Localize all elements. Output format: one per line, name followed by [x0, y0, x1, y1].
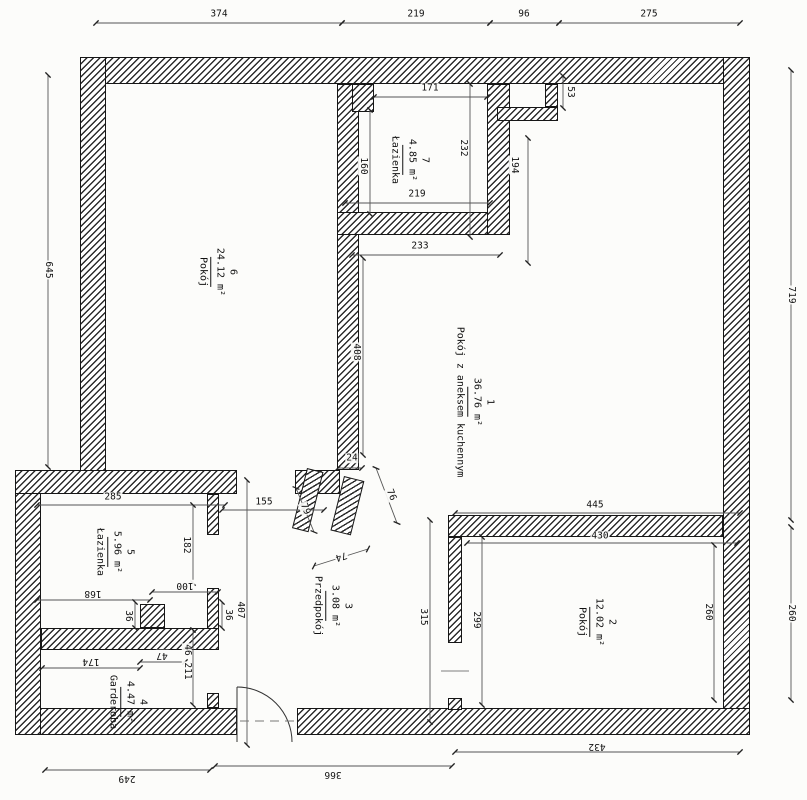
- room-label-divider: [589, 607, 590, 637]
- room-label-6: 624.12 m²Pokój: [196, 248, 239, 296]
- wall-hall-right-a: [448, 537, 462, 643]
- dim-label-233: 233: [410, 241, 429, 251]
- room-name: Przedpokój: [311, 576, 324, 636]
- dim-label-407: 407: [235, 600, 245, 619]
- room-label-2: 212.02 m²Pokój: [575, 598, 618, 646]
- dim-label-232: 232: [458, 138, 468, 157]
- wall-bath7-bottom: [337, 212, 510, 235]
- dim-label-36: 36: [123, 609, 133, 622]
- room-area: 12.02 m²: [592, 598, 605, 646]
- room-label-4: 44.47 m²Garderoba: [106, 675, 149, 729]
- room-number: 2: [605, 619, 618, 625]
- dim-label-155: 155: [254, 497, 273, 507]
- dim-label-46: 46: [182, 643, 192, 656]
- dim-label-160: 160: [358, 156, 368, 175]
- room-label-3: 33.08 m²Przedpokój: [311, 576, 354, 636]
- wall-exterior-bottom-right: [297, 708, 750, 735]
- room-area: 24.12 m²: [213, 248, 226, 296]
- wall-hall-right-b: [448, 698, 462, 710]
- room-name: Pokój: [575, 607, 588, 637]
- room-area: 5.96 m²: [110, 531, 123, 573]
- wall-exterior-top: [80, 57, 750, 84]
- wall-hall-left-a: [207, 494, 219, 535]
- room-name: Garderoba: [106, 675, 119, 729]
- dim-label-374: 374: [209, 9, 228, 19]
- room-number: 7: [418, 157, 431, 163]
- dim-label-249: 249: [117, 773, 136, 783]
- room-label-divider: [467, 387, 468, 417]
- dim-label-36: 36: [223, 608, 233, 621]
- dim-label-174: 174: [81, 656, 100, 666]
- room-name: Łazienka: [93, 528, 106, 576]
- room-label-divider: [325, 591, 326, 621]
- dim-label-182: 182: [181, 535, 191, 554]
- dim-label-299: 299: [471, 610, 481, 629]
- wall-room6-room1-divider: [337, 84, 359, 470]
- wall-exterior-left-upper: [80, 57, 106, 494]
- dim-label-285: 285: [103, 492, 122, 502]
- room-label-7: 74.85 m²Łazienka: [388, 136, 431, 184]
- room-area: 4.47 m²: [123, 681, 136, 723]
- dim-label-645: 645: [43, 260, 53, 279]
- room-label-5: 55.96 m²Łazienka: [93, 528, 136, 576]
- wall-hall-left-c: [207, 693, 219, 708]
- room-label-divider: [210, 257, 211, 287]
- wall-bath7-step-stub: [352, 84, 374, 112]
- wall-niche-right-stub: [545, 84, 558, 107]
- dim-label-47: 47: [155, 650, 168, 660]
- entrance-door: [237, 687, 294, 742]
- dim-label-74: 74: [333, 549, 349, 562]
- room-label-divider: [402, 145, 403, 175]
- dim-label-219: 219: [406, 9, 425, 19]
- dim-label-76: 76: [384, 487, 398, 503]
- room-area: 36.76 m²: [470, 378, 483, 426]
- wall-room2-top: [448, 515, 723, 537]
- dim-label-408: 408: [351, 342, 361, 361]
- room-number: 3: [341, 603, 354, 609]
- room-number: 4: [136, 699, 149, 705]
- dim-label-171: 171: [420, 83, 439, 93]
- dim-label-366: 366: [323, 769, 342, 779]
- dim-label-24: 24: [345, 453, 358, 463]
- floor-plan: 3742199627564571926024936643228518216810…: [0, 0, 807, 800]
- dim-label-100: 100: [175, 580, 194, 590]
- room-number: 1: [483, 399, 496, 405]
- dim-label-219: 219: [407, 189, 426, 199]
- dim-label-194: 194: [509, 155, 519, 174]
- dim-label-430: 430: [590, 531, 609, 541]
- room-number: 6: [226, 269, 239, 275]
- dim-label-432: 432: [587, 741, 606, 751]
- room-name: Pokój z aneksem kuchennym: [453, 327, 466, 478]
- dim-label-445: 445: [585, 500, 604, 510]
- room-label-1: 136.76 m²Pokój z aneksem kuchennym: [453, 327, 496, 478]
- room-name: Łazienka: [388, 136, 401, 184]
- room-label-divider: [107, 537, 108, 567]
- dim-label-96: 96: [517, 9, 530, 19]
- dim-label-53: 53: [565, 85, 575, 98]
- wall-exterior-right: [723, 57, 750, 735]
- room-name: Pokój: [196, 257, 209, 287]
- room-label-divider: [120, 687, 121, 717]
- dim-label-260: 260: [703, 602, 713, 621]
- dim-label-211: 211: [182, 661, 192, 680]
- dim-label-719: 719: [786, 285, 796, 304]
- dim-label-315: 315: [418, 607, 428, 626]
- wall-room5-notch-stub: [140, 604, 165, 628]
- dim-label-275: 275: [639, 9, 658, 19]
- dim-label-260: 260: [786, 603, 796, 622]
- room-number: 5: [123, 549, 136, 555]
- room-area: 3.08 m²: [328, 585, 341, 627]
- room-area: 4.85 m²: [405, 139, 418, 181]
- wall-niche-bottom: [497, 107, 558, 121]
- wall-room6-bottom-band: [15, 470, 237, 494]
- dim-label-168: 168: [83, 588, 102, 598]
- wall-exterior-left-lower: [15, 470, 41, 735]
